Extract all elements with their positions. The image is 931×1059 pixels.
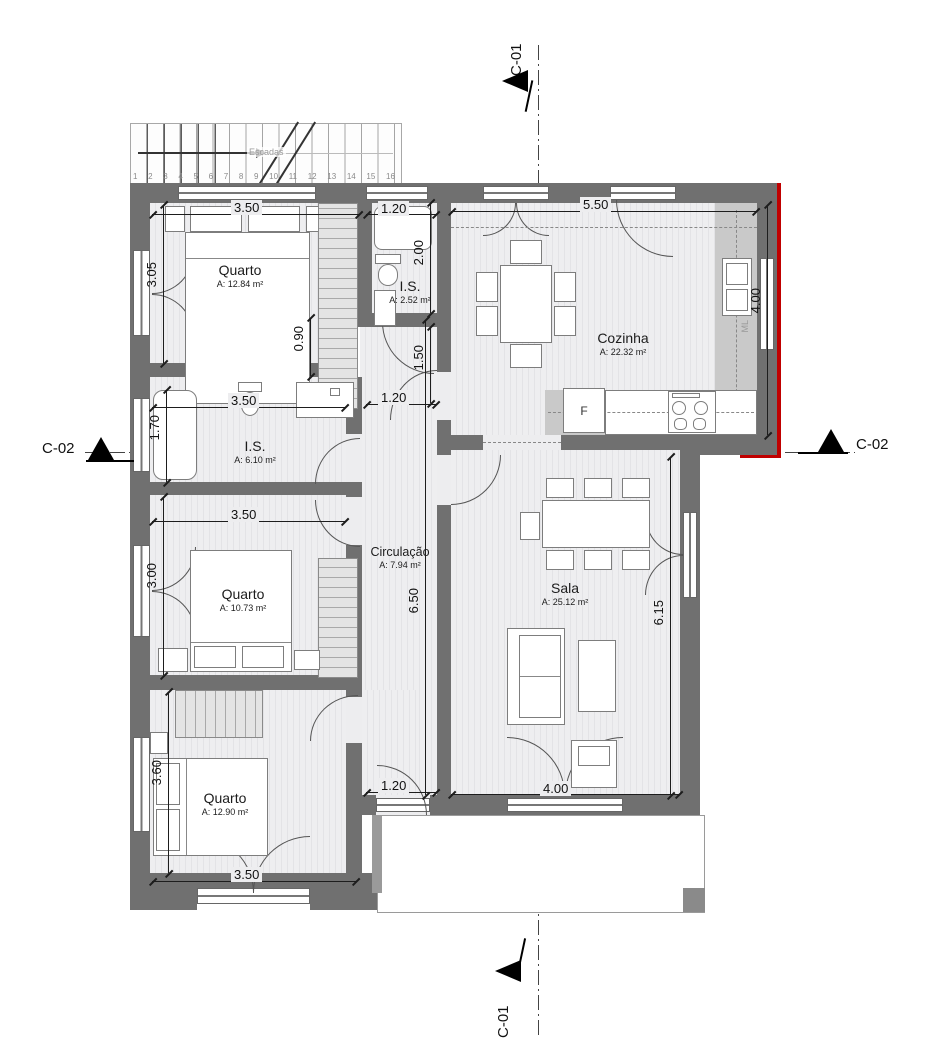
wall-corridor-exit-west xyxy=(360,795,376,815)
door-cozinha-north-1 xyxy=(483,186,549,200)
section-cut-highlight-2 xyxy=(740,455,781,458)
dim-sala-width: 4.00 xyxy=(540,781,571,796)
dim-is2-height: 1.70 xyxy=(147,415,162,440)
section-marker-c01-bottom-label: C-01 xyxy=(495,986,512,1038)
room-name: Quarto xyxy=(193,586,293,602)
step-number: 12 xyxy=(308,172,317,181)
section-marker-c02-left-icon xyxy=(88,437,114,460)
dim-q3-width: 3.50 xyxy=(231,867,262,882)
burner xyxy=(672,401,686,415)
nightstand xyxy=(165,206,185,232)
washing-machine-label: ML xyxy=(740,320,750,333)
dim-line xyxy=(166,390,167,482)
step-number: 1 xyxy=(133,172,137,181)
room-label-quarto-2: Quarto A: 10.73 m² xyxy=(193,586,293,613)
step-number: 16 xyxy=(386,172,395,181)
dim-q3-height: 3.60 xyxy=(149,760,164,785)
dim-line xyxy=(430,327,431,403)
side-table xyxy=(578,640,616,712)
dim-line xyxy=(767,205,768,435)
stairs-step-numbers: 12345678910111213141516 xyxy=(133,172,395,181)
room-area: A: 12.84 m² xyxy=(190,279,290,289)
dim-is2-width: 3.50 xyxy=(228,393,259,408)
chair xyxy=(520,512,540,540)
sink-basin xyxy=(693,418,706,430)
dim-cozinha-width: 5.50 xyxy=(580,197,611,212)
window-is1-north xyxy=(366,186,428,200)
dim-q1-width: 3.50 xyxy=(231,200,262,215)
step-number: 15 xyxy=(366,172,375,181)
window-quarto3-west xyxy=(133,737,150,832)
door-sala-east xyxy=(683,512,697,598)
pillow xyxy=(194,646,236,668)
dim-cozinha-height: 4.00 xyxy=(748,288,763,313)
chair xyxy=(546,478,574,498)
dim-hall-width-bottom: 1.20 xyxy=(378,778,409,793)
step-number: 4 xyxy=(178,172,182,181)
door-cozinha-north-2 xyxy=(610,186,676,200)
stairs-label: Escadas xyxy=(247,147,286,157)
dim-q2-height: 3.00 xyxy=(144,563,159,588)
room-name: Sala xyxy=(515,580,615,596)
nightstand xyxy=(150,732,168,754)
door-opening-cozinha xyxy=(437,372,451,420)
section-marker-c02-right-tail xyxy=(798,452,848,454)
sink-basin xyxy=(674,418,687,430)
step-number: 5 xyxy=(194,172,198,181)
chair xyxy=(584,478,612,498)
step-number: 7 xyxy=(224,172,228,181)
section-marker-c02-right-label: C-02 xyxy=(856,436,889,453)
room-label-is-1: I.S. A: 2.52 m² xyxy=(385,278,435,305)
room-name: I.S. xyxy=(210,438,300,454)
step-number: 11 xyxy=(289,172,297,181)
wardrobe xyxy=(175,690,263,738)
dim-line xyxy=(163,497,164,675)
stairs-direction-line-cont xyxy=(268,153,393,154)
room-area: A: 2.52 m² xyxy=(385,295,435,305)
bed-blanket-line xyxy=(186,258,309,259)
section-marker-c02-right-icon xyxy=(818,429,844,452)
step-number: 2 xyxy=(148,172,152,181)
sofa-cushion-line xyxy=(520,676,560,677)
room-name: Cozinha xyxy=(573,330,673,346)
bed-blanket-line xyxy=(191,642,291,643)
patio-wall-strip xyxy=(372,815,382,893)
dim-line xyxy=(670,457,671,795)
dim-line xyxy=(310,318,311,376)
nightstand xyxy=(294,650,320,670)
room-label-quarto-3: Quarto A: 12.90 m² xyxy=(175,790,275,817)
chair xyxy=(510,240,542,264)
dim-hall-width-mid: 1.20 xyxy=(378,390,409,405)
dim-hall-gap: 0.90 xyxy=(291,326,306,351)
faucet xyxy=(330,388,340,396)
pillow xyxy=(242,646,284,668)
room-name: Quarto xyxy=(175,790,275,806)
toilet-tank xyxy=(375,254,401,264)
room-label-quarto-1: Quarto A: 12.84 m² xyxy=(190,262,290,289)
chair xyxy=(622,550,650,570)
door-opening-sala xyxy=(437,455,451,505)
wall-is1-west xyxy=(358,183,372,327)
dining-table xyxy=(542,500,650,548)
room-label-cozinha: Cozinha A: 22.32 m² xyxy=(573,330,673,357)
room-label-is-2: I.S. A: 6.10 m² xyxy=(210,438,300,465)
chair xyxy=(554,272,576,302)
chair xyxy=(476,272,498,302)
sink-basin xyxy=(726,289,748,311)
step-number: 3 xyxy=(163,172,167,181)
section-marker-c01-bottom-icon xyxy=(495,960,521,982)
room-label-circulacao: Circulação A: 7.94 m² xyxy=(358,545,442,570)
dim-line xyxy=(163,205,164,363)
dim-q2-width: 3.50 xyxy=(228,507,259,522)
room-name: Circulação xyxy=(358,545,442,559)
section-marker-c02-left-label: C-02 xyxy=(42,440,75,457)
wardrobe xyxy=(318,203,358,409)
patio-pillar xyxy=(683,888,705,912)
dim-q1-height: 3.05 xyxy=(144,262,159,287)
room-area: A: 25.12 m² xyxy=(515,597,615,607)
dim-is1-width: 1.20 xyxy=(378,201,409,216)
step-number: 14 xyxy=(347,172,356,181)
threshold-dash xyxy=(483,442,561,443)
window-quarto1-north xyxy=(178,186,316,200)
lintel-dash xyxy=(451,227,757,228)
room-area: A: 6.10 m² xyxy=(210,455,300,465)
fridge: F xyxy=(563,388,605,433)
toilet-tank xyxy=(238,382,262,392)
step-number: 8 xyxy=(239,172,243,181)
room-label-sala: Sala A: 25.12 m² xyxy=(515,580,615,607)
section-marker-c01-bottom-tail xyxy=(518,938,526,968)
wall-southwest-stub-1 xyxy=(130,893,197,910)
section-cut-highlight xyxy=(777,183,781,455)
room-name: I.S. xyxy=(385,278,435,294)
chair xyxy=(584,550,612,570)
stove-knobs xyxy=(672,393,700,398)
chair xyxy=(622,478,650,498)
dim-is1-depth: 2.00 xyxy=(411,240,426,265)
door-sala-south xyxy=(507,798,623,812)
burner xyxy=(694,401,708,415)
chair xyxy=(510,344,542,368)
fridge-label: F xyxy=(580,404,587,418)
dining-table xyxy=(500,265,552,343)
tv xyxy=(578,746,610,766)
step-number: 10 xyxy=(269,172,278,181)
sink-basin xyxy=(726,263,748,285)
step-number: 6 xyxy=(209,172,213,181)
wall-sala-east xyxy=(680,435,700,815)
dim-circ-height: 6.50 xyxy=(406,588,421,613)
floor-plan: Escadas 12345678910111213141516 xyxy=(0,0,931,1059)
stairs-direction-line xyxy=(138,152,256,154)
dim-line xyxy=(168,692,169,873)
section-marker-c02-left-tail xyxy=(86,460,134,462)
window-quarto2-west xyxy=(133,545,150,637)
step-number: 9 xyxy=(254,172,258,181)
section-marker-c01-top-label: C-01 xyxy=(508,24,525,76)
chair xyxy=(546,550,574,570)
patio xyxy=(377,815,705,913)
room-area: A: 12.90 m² xyxy=(175,807,275,817)
room-area: A: 10.73 m² xyxy=(193,603,293,613)
room-name: Quarto xyxy=(190,262,290,278)
dim-sala-height: 6.15 xyxy=(651,600,666,625)
room-area: A: 7.94 m² xyxy=(358,560,442,570)
wardrobe xyxy=(318,558,358,678)
step-number: 13 xyxy=(327,172,336,181)
room-area: A: 22.32 m² xyxy=(573,347,673,357)
dim-hall-upper: 1.50 xyxy=(411,345,426,370)
chair xyxy=(476,306,498,336)
sink-counter xyxy=(296,382,354,418)
section-marker-c01-top-icon xyxy=(502,70,528,92)
